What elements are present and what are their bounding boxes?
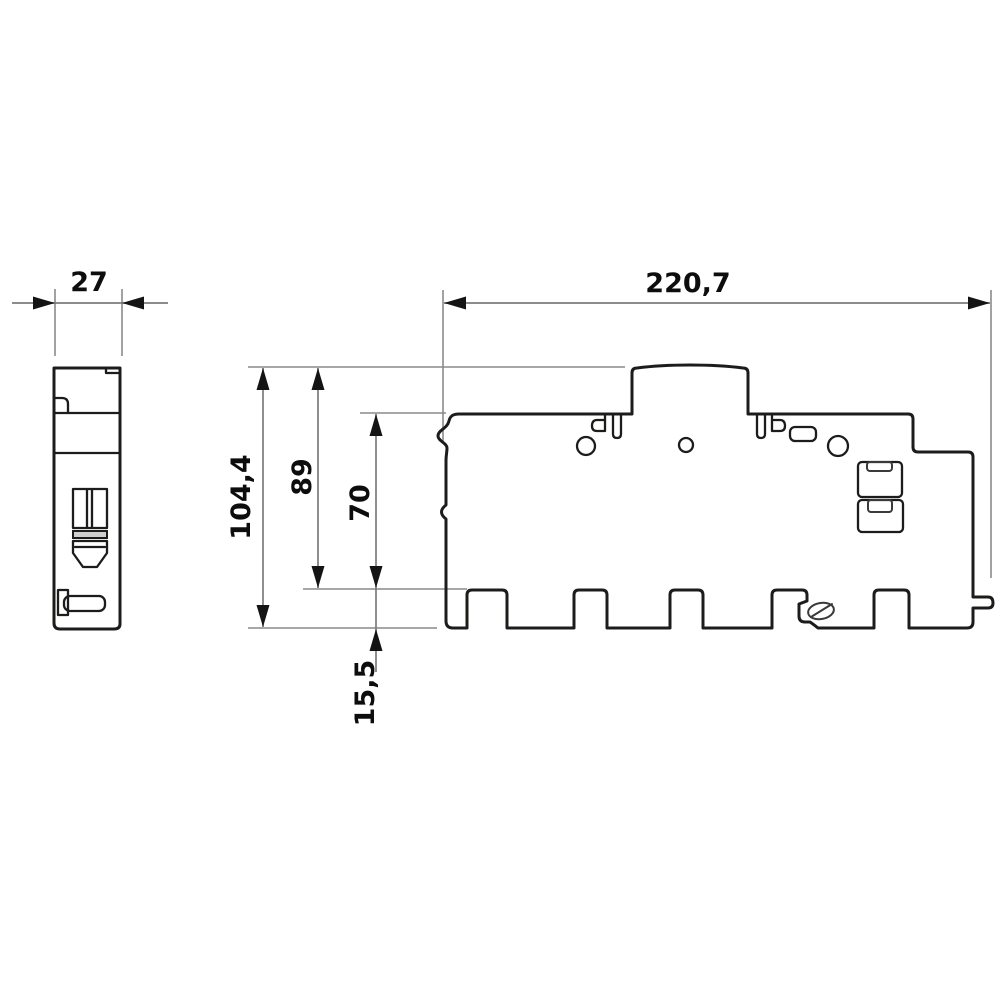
hole-center (679, 438, 693, 452)
connector-window-lower (858, 500, 903, 532)
side-clamp-window (73, 489, 107, 528)
side-foot-slot (64, 596, 105, 611)
latch-hook-left (592, 414, 605, 431)
drawing-canvas: 27 220,7 104,4 89 70 15,5 (0, 0, 1000, 1000)
arrow-up-icon (257, 368, 270, 390)
arrow-right-icon (33, 297, 55, 310)
hole-right (828, 436, 848, 456)
window-small (790, 427, 816, 441)
side-clamp-band (73, 531, 107, 538)
hole-left (577, 437, 595, 455)
front-view (438, 365, 993, 628)
connector-notch-lower (868, 500, 892, 512)
technical-drawing: 27 220,7 104,4 89 70 15,5 (0, 0, 1000, 1000)
dim-label-overall-height: 104,4 (226, 454, 257, 539)
side-clamp-divider (87, 489, 92, 528)
dimension-lines (12, 297, 990, 673)
arrow-down-icon (312, 566, 325, 588)
dimension-labels: 27 220,7 104,4 89 70 15,5 (70, 267, 730, 726)
extension-lines (55, 289, 991, 628)
dim-label-body-height: 70 (345, 484, 376, 522)
dim-label-side-width: 27 (70, 267, 108, 298)
front-top-features (577, 414, 848, 456)
slot-pin-left (613, 414, 621, 438)
front-connector-windows (858, 462, 903, 532)
front-view-outline (438, 365, 993, 628)
front-screw-detail (807, 601, 835, 621)
side-clamp-pocket (73, 541, 107, 567)
arrow-left-icon (444, 297, 466, 310)
slot-pin-right (757, 414, 765, 438)
latch-hook-right (772, 414, 785, 431)
dim-label-upper-height: 89 (287, 458, 318, 496)
arrow-right-icon (968, 297, 990, 310)
dim-label-foot-height: 15,5 (350, 660, 381, 727)
arrow-down-icon (370, 566, 383, 588)
arrow-up-icon (370, 414, 383, 436)
connector-notch-upper (867, 462, 892, 471)
side-step-hook (54, 398, 68, 413)
connector-window-upper (858, 462, 902, 497)
arrow-up-icon (370, 629, 383, 651)
arrow-up-icon (312, 368, 325, 390)
arrow-down-icon (257, 605, 270, 627)
side-view (54, 368, 120, 629)
dim-label-overall-width: 220,7 (645, 268, 730, 299)
arrow-left-icon (122, 297, 144, 310)
